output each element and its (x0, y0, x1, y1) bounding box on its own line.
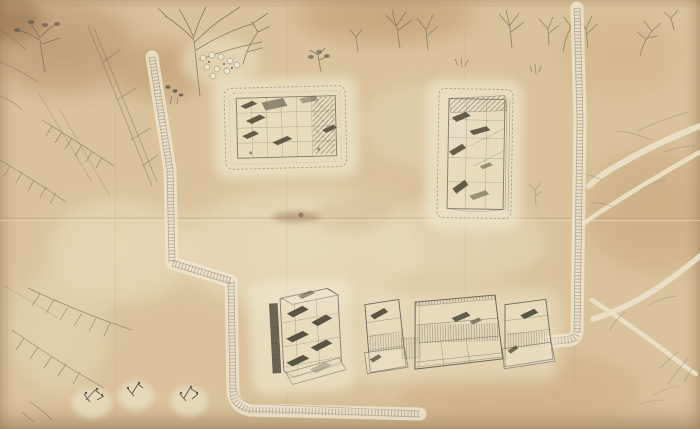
east-compound (425, 79, 524, 231)
tree (499, 10, 524, 48)
site-plan-drawing (0, 0, 700, 429)
faint-diagonals (38, 92, 110, 196)
south-building (247, 277, 357, 394)
aged-paper-drawing (0, 0, 700, 429)
tuft (530, 64, 541, 74)
outbuildings-row (356, 290, 560, 382)
mounds-with-plants (72, 382, 208, 418)
small-plant (529, 183, 542, 205)
tree (539, 17, 559, 45)
twig (664, 10, 678, 30)
north-compound (213, 76, 360, 180)
tuft (455, 58, 468, 67)
outbuilding-middle (413, 295, 504, 369)
dark-bush (308, 48, 330, 72)
outbuilding-east (501, 299, 555, 369)
